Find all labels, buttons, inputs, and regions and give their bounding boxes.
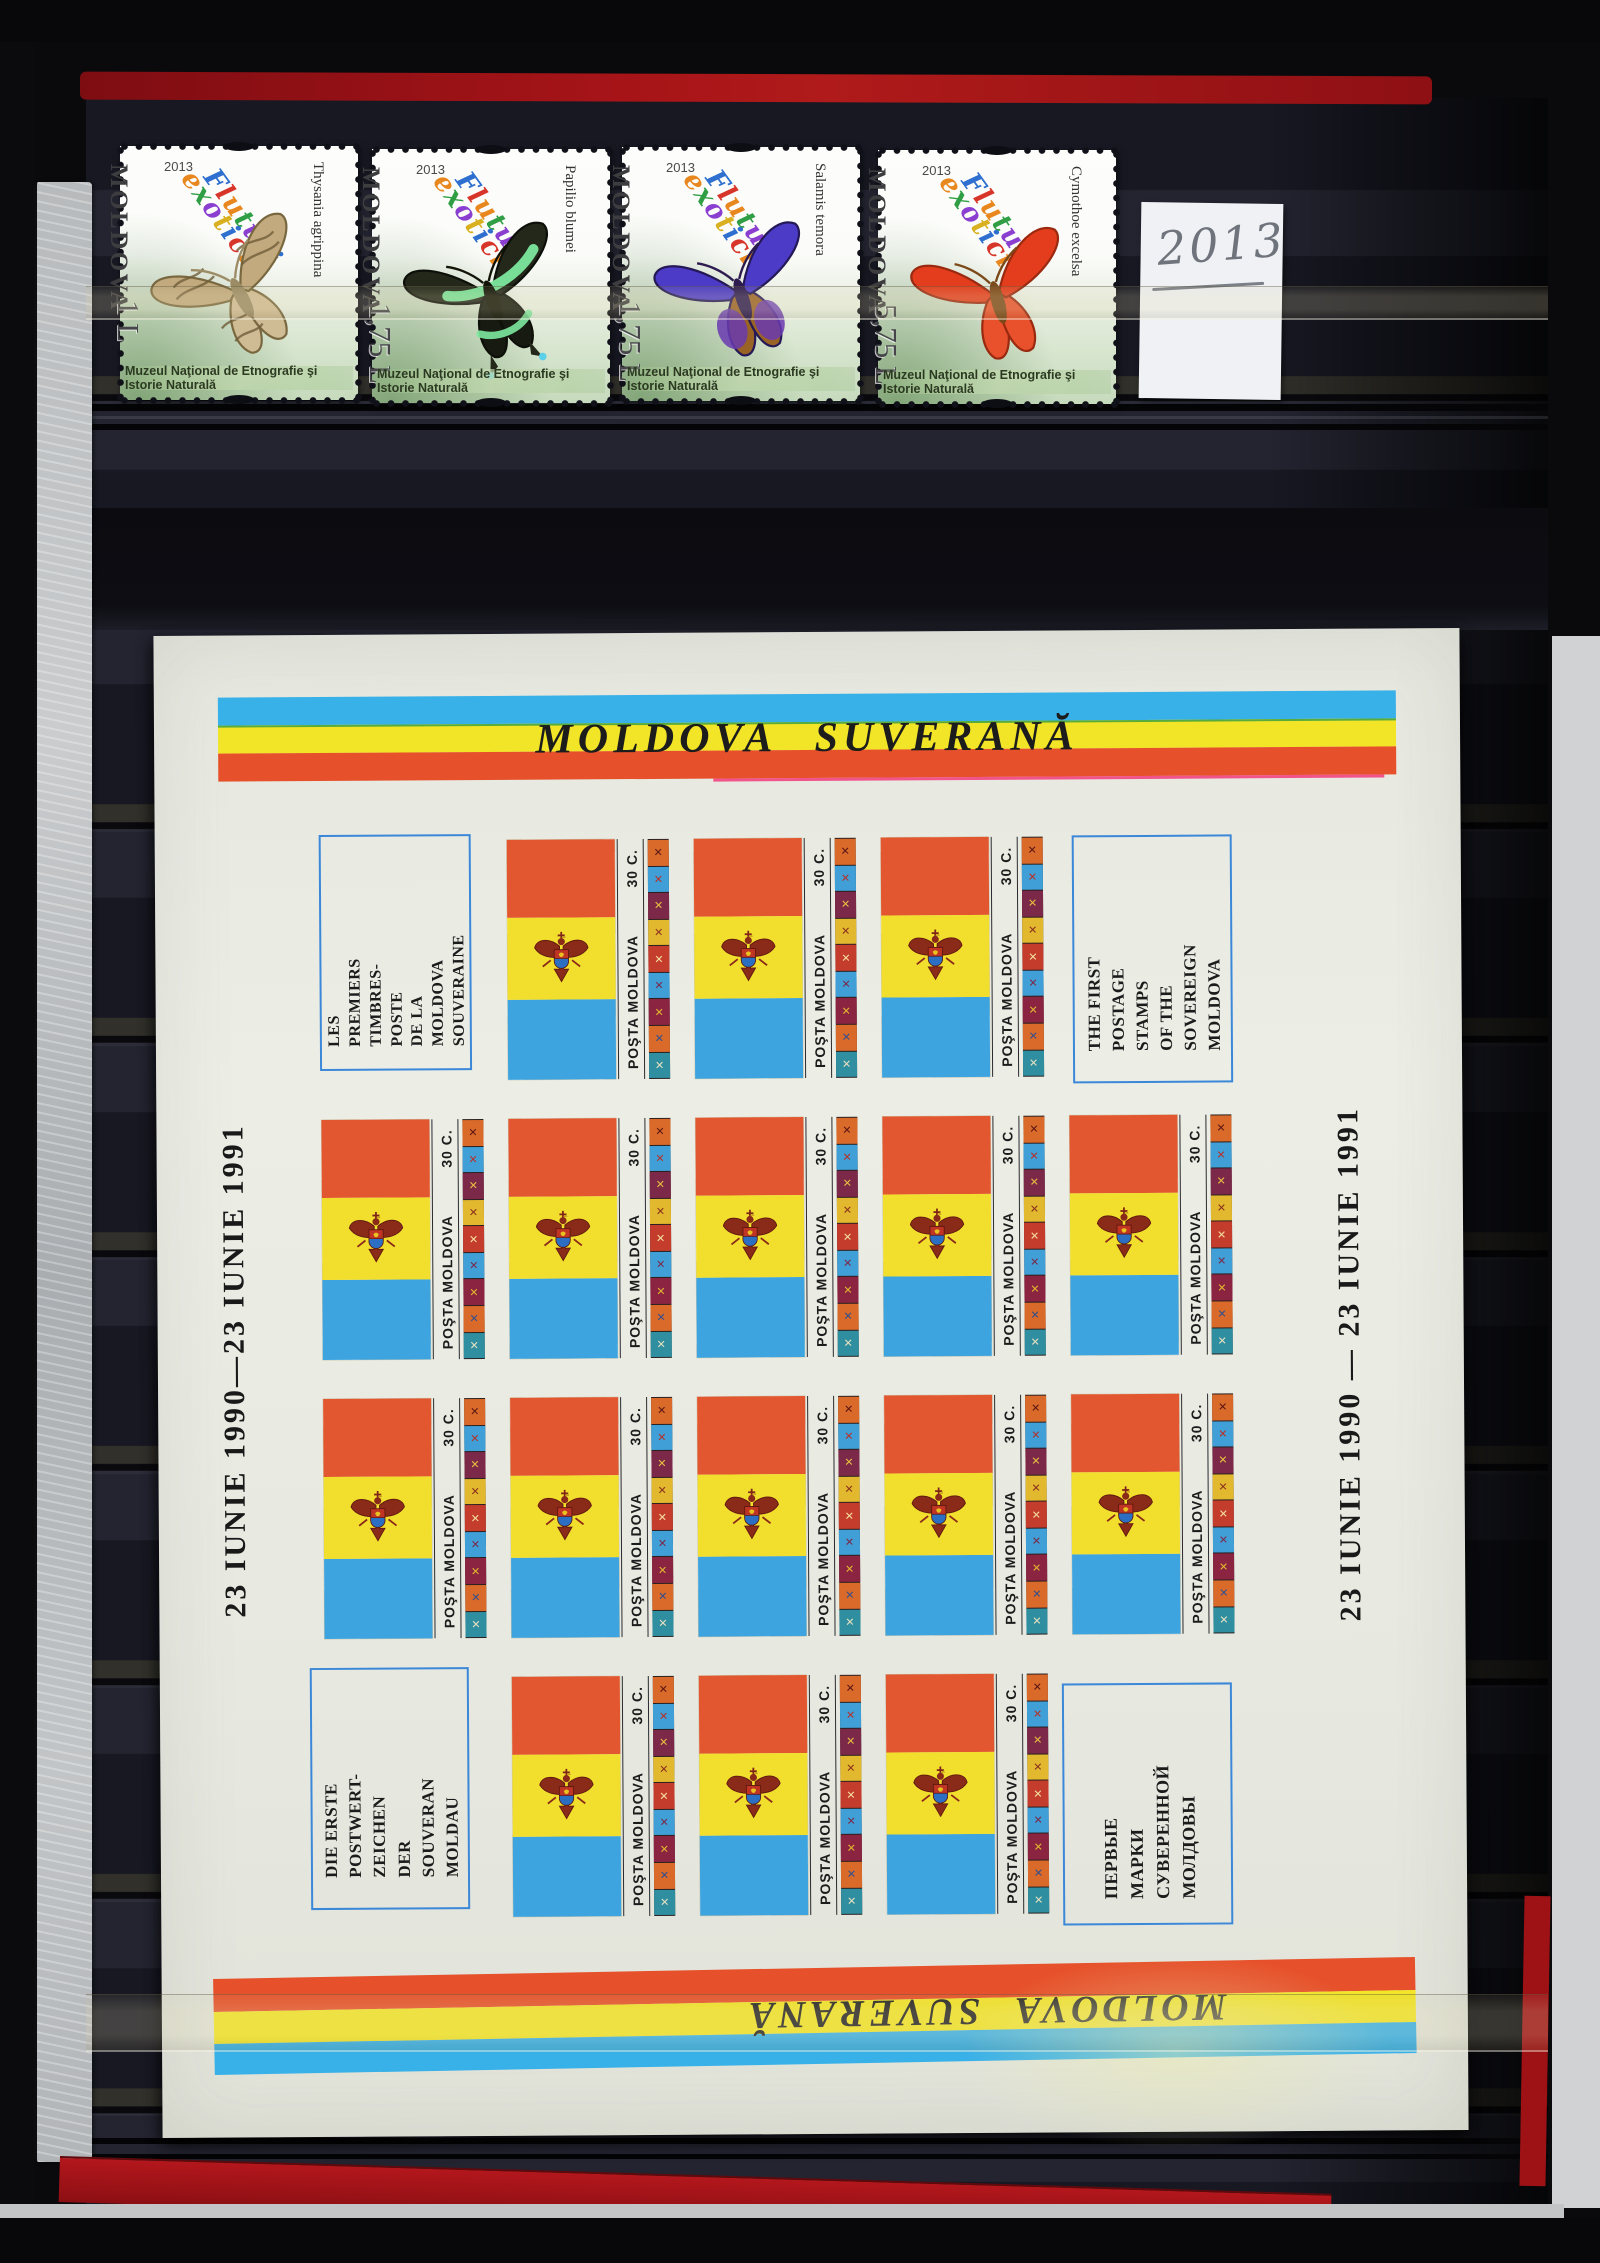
ornament-cell: ✕: [835, 839, 856, 865]
ornament-cell: ✕: [1026, 1502, 1047, 1528]
glassine-interleaf: [34, 182, 92, 2162]
moldova-flag: [699, 1675, 808, 1916]
flag-blue-band: [324, 1558, 432, 1639]
moldova-flag: [886, 1674, 995, 1915]
ornament-cell: ✕: [650, 1172, 671, 1198]
flag-red-band: [507, 839, 615, 918]
ornament-cell: ✕: [648, 893, 669, 919]
moldova-flag: [882, 1116, 991, 1357]
flag-red-band: [1071, 1394, 1179, 1473]
stamp-inscription-column: POŞTA MOLDOVA 30 C.: [1179, 1115, 1207, 1355]
flag-yellow-band: [881, 915, 989, 998]
flag-stamp-denomination: 30 C.: [624, 849, 640, 888]
stamp-inscription-column: POŞTA MOLDOVA 30 C.: [618, 1118, 646, 1358]
ornament-cell: ✕: [840, 1676, 861, 1702]
ornament-cell: ✕: [1211, 1142, 1232, 1168]
ornament-cell: ✕: [463, 1279, 484, 1305]
ornament-cell: ✕: [1212, 1301, 1233, 1327]
flag-red-band: [1069, 1115, 1177, 1194]
ornament-cell: ✕: [1027, 1701, 1048, 1727]
ornament-cell: ✕: [462, 1120, 483, 1146]
flag-stamp: POŞTA MOLDOVA 30 C. ✕✕✕✕✕✕✕✕✕: [1071, 1393, 1234, 1634]
posta-moldova-label: POŞTA MOLDOVA: [626, 1214, 643, 1348]
stamp-country-label: MOLDOVA: [862, 168, 890, 316]
flag-stamp: POŞTA MOLDOVA 30 C. ✕✕✕✕✕✕✕✕✕: [694, 838, 857, 1079]
moldova-flag: [884, 1395, 993, 1636]
souvenir-sheet: MOLDOVA SUVERANĂ LESPREMIERSTIMBRES-POST…: [153, 628, 1468, 2138]
ornament-cell: ✕: [652, 1531, 673, 1557]
mount-mark: [476, 145, 506, 154]
flag-yellow-band: [699, 1753, 807, 1836]
stamp-inscription-column: POŞTA MOLDOVA 30 C.: [433, 1398, 461, 1638]
ornament-cell: ✕: [1022, 944, 1043, 970]
ornament-cell: ✕: [839, 1476, 860, 1502]
moldova-flag: [507, 839, 616, 1080]
flag-stamp: POŞTA MOLDOVA 30 C. ✕✕✕✕✕✕✕✕✕: [882, 1116, 1045, 1357]
ornament-cell: ✕: [839, 1609, 860, 1635]
coat-of-arms-icon: [529, 929, 593, 987]
posta-moldova-label: POŞTA MOLDOVA: [629, 1772, 646, 1906]
flag-stamp: POŞTA MOLDOVA 30 C. ✕✕✕✕✕✕✕✕✕: [695, 1117, 858, 1358]
stamp-inscription-column: POŞTA MOLDOVA 30 C.: [991, 837, 1019, 1077]
flag-red-band: [694, 838, 802, 917]
ornament-cell: ✕: [1022, 891, 1043, 917]
ornament-cell: ✕: [1212, 1394, 1233, 1420]
ornament-cell: ✕: [835, 892, 856, 918]
stockbook-scan: MOLDOVA 2013 Thysania agrippina Fluturie…: [0, 0, 1600, 2263]
ornament-cell: ✕: [1025, 1422, 1046, 1448]
ornament-cell: ✕: [463, 1147, 484, 1173]
flag-stamp-denomination: 30 C.: [816, 1685, 832, 1724]
coat-of-arms-icon: [344, 1209, 408, 1267]
posta-moldova-label: POŞTA MOLDOVA: [1187, 1211, 1204, 1345]
stamp-country-label: MOLDOVA: [104, 164, 132, 312]
flag-yellow-band: [322, 1197, 430, 1280]
ornament-cell: ✕: [650, 1278, 671, 1304]
flag-blue-band: [508, 999, 616, 1080]
coat-of-arms-icon: [531, 1208, 595, 1266]
museum-caption: Muzeul Naţional de Etnografie şi Istorie…: [125, 366, 353, 390]
folk-ornament-strip: ✕✕✕✕✕✕✕✕✕: [653, 1676, 675, 1916]
flag-blue-band: [513, 1836, 621, 1917]
ornament-cell: ✕: [837, 1251, 858, 1277]
folk-ornament-strip: ✕✕✕✕✕✕✕✕✕: [1023, 1116, 1045, 1356]
ornament-cell: ✕: [837, 1277, 858, 1303]
coat-of-arms-icon: [533, 1487, 597, 1545]
flag-blue-band: [511, 1557, 619, 1638]
flag-red-band: [510, 1397, 618, 1476]
ornament-cell: ✕: [1025, 1449, 1046, 1475]
mount-mark: [982, 399, 1012, 408]
ornament-cell: ✕: [465, 1532, 486, 1558]
folk-ornament-strip: ✕✕✕✕✕✕✕✕✕: [840, 1675, 862, 1915]
ornament-cell: ✕: [835, 865, 856, 891]
coat-of-arms-icon: [908, 1764, 972, 1822]
flag-blue-band: [883, 1276, 991, 1357]
ornament-cell: ✕: [1024, 1170, 1045, 1196]
moldova-flag: [323, 1398, 432, 1639]
stamp-inscription-column: POŞTA MOLDOVA 30 C.: [620, 1397, 648, 1637]
moldova-flag: [508, 1118, 617, 1359]
ornament-cell: ✕: [838, 1330, 859, 1356]
posta-moldova-label: POŞTA MOLDOVA: [441, 1494, 458, 1628]
ornament-cell: ✕: [1028, 1834, 1049, 1860]
scan-edge-top: [0, 0, 1600, 42]
ornament-cell: ✕: [1026, 1608, 1047, 1634]
ornament-cell: ✕: [835, 972, 856, 998]
ornament-cell: ✕: [1024, 1143, 1045, 1169]
ornament-cell: ✕: [653, 1703, 674, 1729]
ornament-cell: ✕: [839, 1503, 860, 1529]
flag-stamp: POŞTA MOLDOVA 30 C. ✕✕✕✕✕✕✕✕✕: [512, 1676, 675, 1917]
folk-ornament-strip: ✕✕✕✕✕✕✕✕✕: [648, 839, 670, 1079]
ornament-cell: ✕: [837, 1224, 858, 1250]
pocket-ridge-highlight: [86, 416, 1548, 419]
flag-stamp: POŞTA MOLDOVA 30 C. ✕✕✕✕✕✕✕✕✕: [321, 1119, 484, 1360]
ornament-cell: ✕: [841, 1835, 862, 1861]
ornament-cell: ✕: [1213, 1501, 1234, 1527]
note-underline: [1152, 282, 1264, 291]
mount-mark: [224, 395, 254, 404]
ornament-cell: ✕: [838, 1450, 859, 1476]
flag-yellow-band: [886, 1752, 994, 1835]
ornament-cell: ✕: [464, 1452, 485, 1478]
ornament-cell: ✕: [653, 1783, 674, 1809]
flag-stamp-denomination: 30 C.: [998, 847, 1014, 886]
ornament-cell: ✕: [1028, 1807, 1049, 1833]
posta-moldova-label: POŞTA MOLDOVA: [815, 1492, 832, 1626]
flag-stamp: POŞTA MOLDOVA 30 C. ✕✕✕✕✕✕✕✕✕: [323, 1398, 486, 1639]
ornament-cell: ✕: [465, 1479, 486, 1505]
coat-of-arms-icon: [720, 1486, 784, 1544]
paper-tone-patch: [961, 1952, 1392, 2151]
flag-blue-band: [698, 1556, 806, 1637]
flag-yellow-band: [507, 917, 615, 1000]
ornament-cell: ✕: [837, 1171, 858, 1197]
ornament-cell: ✕: [465, 1585, 486, 1611]
ornament-cell: ✕: [1022, 864, 1043, 890]
ornament-cell: ✕: [1025, 1303, 1046, 1329]
ornament-cell: ✕: [649, 999, 670, 1025]
ornament-cell: ✕: [1024, 1196, 1045, 1222]
mount-mark: [726, 396, 756, 405]
posta-moldova-label: POŞTA MOLDOVA: [1003, 1770, 1020, 1904]
ornament-cell: ✕: [651, 1331, 672, 1357]
ornament-cell: ✕: [841, 1809, 862, 1835]
coat-of-arms-icon: [721, 1765, 785, 1823]
flag-yellow-band: [324, 1476, 432, 1559]
ornament-cell: ✕: [653, 1677, 674, 1703]
ornament-cell: ✕: [1022, 970, 1043, 996]
album-cover-edge-top: [80, 72, 1432, 105]
stamp-inscription-column: POŞTA MOLDOVA 30 C.: [992, 1116, 1020, 1356]
folk-ornament-strip: ✕✕✕✕✕✕✕✕✕: [836, 1117, 858, 1357]
mount-mark: [726, 143, 756, 152]
butterfly-illustration: [900, 206, 1092, 382]
posta-moldova-label: POŞTA MOLDOVA: [811, 934, 828, 1068]
ornament-cell: ✕: [1211, 1195, 1232, 1221]
ornament-cell: ✕: [650, 1252, 671, 1278]
flag-stamp: POŞTA MOLDOVA 30 C. ✕✕✕✕✕✕✕✕✕: [699, 1675, 862, 1916]
coat-of-arms-icon: [903, 927, 967, 985]
flag-red-band: [882, 1116, 990, 1195]
pocket-ridge: [86, 2154, 1548, 2159]
ornament-cell: ✕: [1025, 1329, 1046, 1355]
ornament-cell: ✕: [1213, 1554, 1234, 1580]
flag-red-band: [508, 1118, 616, 1197]
ornament-cell: ✕: [1023, 1024, 1044, 1050]
posta-moldova-label: POŞTA MOLDOVA: [1002, 1491, 1019, 1625]
coat-of-arms-icon: [718, 1207, 782, 1265]
ornament-cell: ✕: [465, 1505, 486, 1531]
flag-blue-band: [322, 1279, 430, 1360]
flag-yellow-band: [1070, 1193, 1178, 1276]
flag-yellow-band: [694, 916, 802, 999]
ornament-cell: ✕: [465, 1611, 486, 1637]
flag-red-band: [884, 1395, 992, 1474]
stamp-inscription-column: POŞTA MOLDOVA 30 C.: [809, 1675, 837, 1915]
ornament-cell: ✕: [463, 1200, 484, 1226]
flag-stamp: POŞTA MOLDOVA 30 C. ✕✕✕✕✕✕✕✕✕: [507, 839, 670, 1080]
ornament-cell: ✕: [653, 1730, 674, 1756]
stamp-inscription-column: POŞTA MOLDOVA 30 C.: [805, 1117, 833, 1357]
flag-red-band: [323, 1398, 431, 1477]
ornament-cell: ✕: [839, 1530, 860, 1556]
flag-blue-band: [695, 998, 803, 1079]
ornament-cell: ✕: [464, 1399, 485, 1425]
ornament-cell: ✕: [464, 1426, 485, 1452]
ornament-cell: ✕: [1213, 1580, 1234, 1606]
ornament-cell: ✕: [1027, 1754, 1048, 1780]
ornament-cell: ✕: [652, 1610, 673, 1636]
stamp-country-label: MOLDOVA: [356, 167, 384, 315]
ornament-cell: ✕: [648, 973, 669, 999]
folk-ornament-strip: ✕✕✕✕✕✕✕✕✕: [651, 1397, 673, 1637]
flag-stamp-denomination: 30 C.: [999, 1126, 1015, 1165]
ornament-cell: ✕: [1213, 1474, 1234, 1500]
flag-blue-band: [700, 1835, 808, 1916]
stamp-inscription-column: POŞTA MOLDOVA 30 C.: [994, 1395, 1022, 1635]
ornament-cell: ✕: [464, 1306, 485, 1332]
stamp-inscription-column: POŞTA MOLDOVA 30 C.: [1181, 1394, 1209, 1634]
ornament-cell: ✕: [1212, 1328, 1233, 1354]
flag-stamp: POŞTA MOLDOVA 30 C. ✕✕✕✕✕✕✕✕✕: [508, 1118, 671, 1359]
ornament-cell: ✕: [648, 840, 669, 866]
flag-red-band: [881, 837, 989, 916]
mount-mark: [982, 146, 1012, 155]
pocket-ridge: [86, 424, 1548, 430]
album-cover-edge-right: [1519, 1896, 1550, 2186]
ornament-cell: ✕: [837, 1197, 858, 1223]
flag-blue-band: [887, 1834, 995, 1915]
ornament-cell: ✕: [1027, 1781, 1048, 1807]
ornament-cell: ✕: [838, 1397, 859, 1423]
moldova-flag: [512, 1676, 621, 1917]
butterfly-stamp: MOLDOVA 2013 Salamis temora Fluturiexoti…: [622, 147, 860, 401]
flag-blue-band: [509, 1278, 617, 1359]
ornament-cell: ✕: [840, 1755, 861, 1781]
ornament-cell: ✕: [654, 1836, 675, 1862]
ornament-cell: ✕: [1027, 1728, 1048, 1754]
ornament-cell: ✕: [1025, 1396, 1046, 1422]
ornament-cell: ✕: [650, 1225, 671, 1251]
moldova-flag: [510, 1397, 619, 1638]
stamp-denomination-label: 1 L: [110, 300, 146, 342]
flag-red-band: [886, 1674, 994, 1753]
ornament-cell: ✕: [1026, 1528, 1047, 1554]
coat-of-arms-icon: [346, 1488, 410, 1546]
flag-yellow-band: [512, 1754, 620, 1837]
moldova-flag: [697, 1396, 806, 1637]
ornament-cell: ✕: [840, 1729, 861, 1755]
flag-stamp-denomination: 30 C.: [1001, 1405, 1017, 1444]
coat-of-arms-icon: [1094, 1484, 1158, 1542]
note-year-text: 2013: [1155, 212, 1288, 275]
ornament-cell: ✕: [1024, 1223, 1045, 1249]
stamp-inscription-column: POŞTA MOLDOVA 30 C.: [996, 1674, 1024, 1914]
flag-blue-band: [1070, 1275, 1178, 1356]
posta-moldova-label: POŞTA MOLDOVA: [1189, 1490, 1206, 1624]
coat-of-arms-icon: [907, 1485, 971, 1543]
ornament-cell: ✕: [837, 1144, 858, 1170]
ornament-cell: ✕: [836, 1051, 857, 1077]
ornament-cell: ✕: [653, 1757, 674, 1783]
ornament-cell: ✕: [1212, 1448, 1233, 1474]
ornament-cell: ✕: [1027, 1675, 1048, 1701]
posta-moldova-label: POŞTA MOLDOVA: [439, 1215, 456, 1349]
posta-moldova-label: POŞTA MOLDOVA: [816, 1771, 833, 1905]
folk-ornament-strip: ✕✕✕✕✕✕✕✕✕: [1210, 1114, 1232, 1354]
coat-of-arms-icon: [534, 1766, 598, 1824]
ornament-cell: ✕: [652, 1504, 673, 1530]
ornament-cell: ✕: [1026, 1581, 1047, 1607]
flag-red-band: [321, 1119, 429, 1198]
stamp-inscription-column: POŞTA MOLDOVA 30 C.: [622, 1676, 650, 1916]
ornament-cell: ✕: [840, 1702, 861, 1728]
museum-caption: Muzeul Naţional de Etnografie şi Istorie…: [377, 369, 605, 393]
ornament-cell: ✕: [841, 1888, 862, 1914]
ornament-cell: ✕: [649, 1052, 670, 1078]
ornament-cell: ✕: [652, 1584, 673, 1610]
flag-stamp: POŞTA MOLDOVA 30 C. ✕✕✕✕✕✕✕✕✕: [697, 1396, 860, 1637]
flag-red-band: [512, 1676, 620, 1755]
posta-moldova-label: POŞTA MOLDOVA: [1000, 1212, 1017, 1346]
ornament-cell: ✕: [839, 1583, 860, 1609]
ornament-cell: ✕: [1028, 1860, 1049, 1886]
ornament-cell: ✕: [1213, 1607, 1234, 1633]
ornament-cell: ✕: [1022, 838, 1043, 864]
flag-stamp-denomination: 30 C.: [1188, 1404, 1204, 1443]
scan-edge-bottom: [0, 2218, 1600, 2263]
museum-caption: Muzeul Naţional de Etnografie şi Istorie…: [627, 367, 855, 391]
moldova-flag: [881, 837, 990, 1078]
flag-red-band: [695, 1117, 803, 1196]
ornament-cell: ✕: [463, 1226, 484, 1252]
stamp-inscription-column: POŞTA MOLDOVA 30 C.: [431, 1119, 459, 1359]
mount-mark: [224, 142, 254, 151]
flag-stamp: POŞTA MOLDOVA 30 C. ✕✕✕✕✕✕✕✕✕: [1069, 1114, 1232, 1355]
coat-of-arms-icon: [716, 928, 780, 986]
flag-blue-band: [882, 997, 990, 1078]
mount-mark: [476, 398, 506, 407]
ornament-cell: ✕: [463, 1253, 484, 1279]
ornament-cell: ✕: [1023, 1117, 1044, 1143]
ornament-cell: ✕: [836, 998, 857, 1024]
flag-stamp-denomination: 30 C.: [625, 1128, 641, 1167]
ornament-cell: ✕: [836, 1118, 857, 1144]
flag-blue-band: [885, 1555, 993, 1636]
flag-stamp-denomination: 30 C.: [1186, 1125, 1202, 1164]
flag-stamp: POŞTA MOLDOVA 30 C. ✕✕✕✕✕✕✕✕✕: [886, 1674, 1049, 1915]
folk-ornament-strip: ✕✕✕✕✕✕✕✕✕: [1027, 1674, 1049, 1914]
posta-moldova-label: POŞTA MOLDOVA: [998, 933, 1015, 1067]
butterfly-stamp: MOLDOVA 2013 Cymothoe excelsa Fluturiexo…: [878, 150, 1116, 404]
flag-yellow-band: [696, 1195, 804, 1278]
moldova-flag: [695, 1117, 804, 1358]
ornament-cell: ✕: [648, 946, 669, 972]
ornament-cell: ✕: [648, 866, 669, 892]
ornament-cell: ✕: [1211, 1169, 1232, 1195]
ornament-cell: ✕: [1023, 1050, 1044, 1076]
scan-edge-left: [0, 0, 34, 2263]
folk-ornament-strip: ✕✕✕✕✕✕✕✕✕: [835, 838, 857, 1078]
moldova-flag: [321, 1119, 430, 1360]
ornament-cell: ✕: [1024, 1249, 1045, 1275]
ornament-cell: ✕: [838, 1304, 859, 1330]
stamp-country-label: MOLDOVA: [606, 165, 634, 313]
flag-stamp-denomination: 30 C.: [438, 1129, 454, 1168]
moldova-flag: [1071, 1394, 1180, 1635]
ornament-cell: ✕: [649, 1026, 670, 1052]
flag-stamp-denomination: 30 C.: [1003, 1684, 1019, 1723]
folk-ornament-strip: ✕✕✕✕✕✕✕✕✕: [1025, 1395, 1047, 1635]
ornament-cell: ✕: [464, 1332, 485, 1358]
moldova-flag: [694, 838, 803, 1079]
ornament-cell: ✕: [651, 1398, 672, 1424]
ornament-cell: ✕: [835, 918, 856, 944]
ornament-cell: ✕: [836, 1025, 857, 1051]
ornament-cell: ✕: [840, 1782, 861, 1808]
coat-of-arms-icon: [1092, 1205, 1156, 1263]
ornament-cell: ✕: [654, 1810, 675, 1836]
ornament-cell: ✕: [1022, 917, 1043, 943]
folk-ornament-strip: ✕✕✕✕✕✕✕✕✕: [649, 1118, 671, 1358]
posta-moldova-label: POŞTA MOLDOVA: [628, 1493, 645, 1627]
ornament-cell: ✕: [654, 1863, 675, 1889]
museum-caption: Muzeul Naţional de Etnografie şi Istorie…: [883, 370, 1111, 394]
flag-blue-band: [696, 1277, 804, 1358]
ornament-cell: ✕: [1211, 1248, 1232, 1274]
ornament-cell: ✕: [1028, 1887, 1049, 1913]
folk-ornament-strip: ✕✕✕✕✕✕✕✕✕: [464, 1398, 486, 1638]
pocket-strip: [86, 508, 1548, 630]
ornament-cell: ✕: [841, 1862, 862, 1888]
ornament-cell: ✕: [1212, 1421, 1233, 1447]
flag-stamp: POŞTA MOLDOVA 30 C. ✕✕✕✕✕✕✕✕✕: [510, 1397, 673, 1638]
flag-blue-band: [1072, 1554, 1180, 1635]
flag-stamp: POŞTA MOLDOVA 30 C. ✕✕✕✕✕✕✕✕✕: [884, 1395, 1047, 1636]
ornament-cell: ✕: [649, 1119, 670, 1145]
ornament-cell: ✕: [1026, 1555, 1047, 1581]
flag-stamp-denomination: 30 C.: [814, 1406, 830, 1445]
flag-yellow-band: [1072, 1472, 1180, 1555]
ornament-cell: ✕: [654, 1889, 675, 1915]
stamp-inscription-column: POŞTA MOLDOVA 30 C.: [807, 1396, 835, 1636]
perforation-edge: [1110, 148, 1123, 406]
flag-stamp-denomination: 30 C.: [811, 848, 827, 887]
butterfly-illustration: [644, 203, 836, 379]
ornament-cell: ✕: [651, 1424, 672, 1450]
